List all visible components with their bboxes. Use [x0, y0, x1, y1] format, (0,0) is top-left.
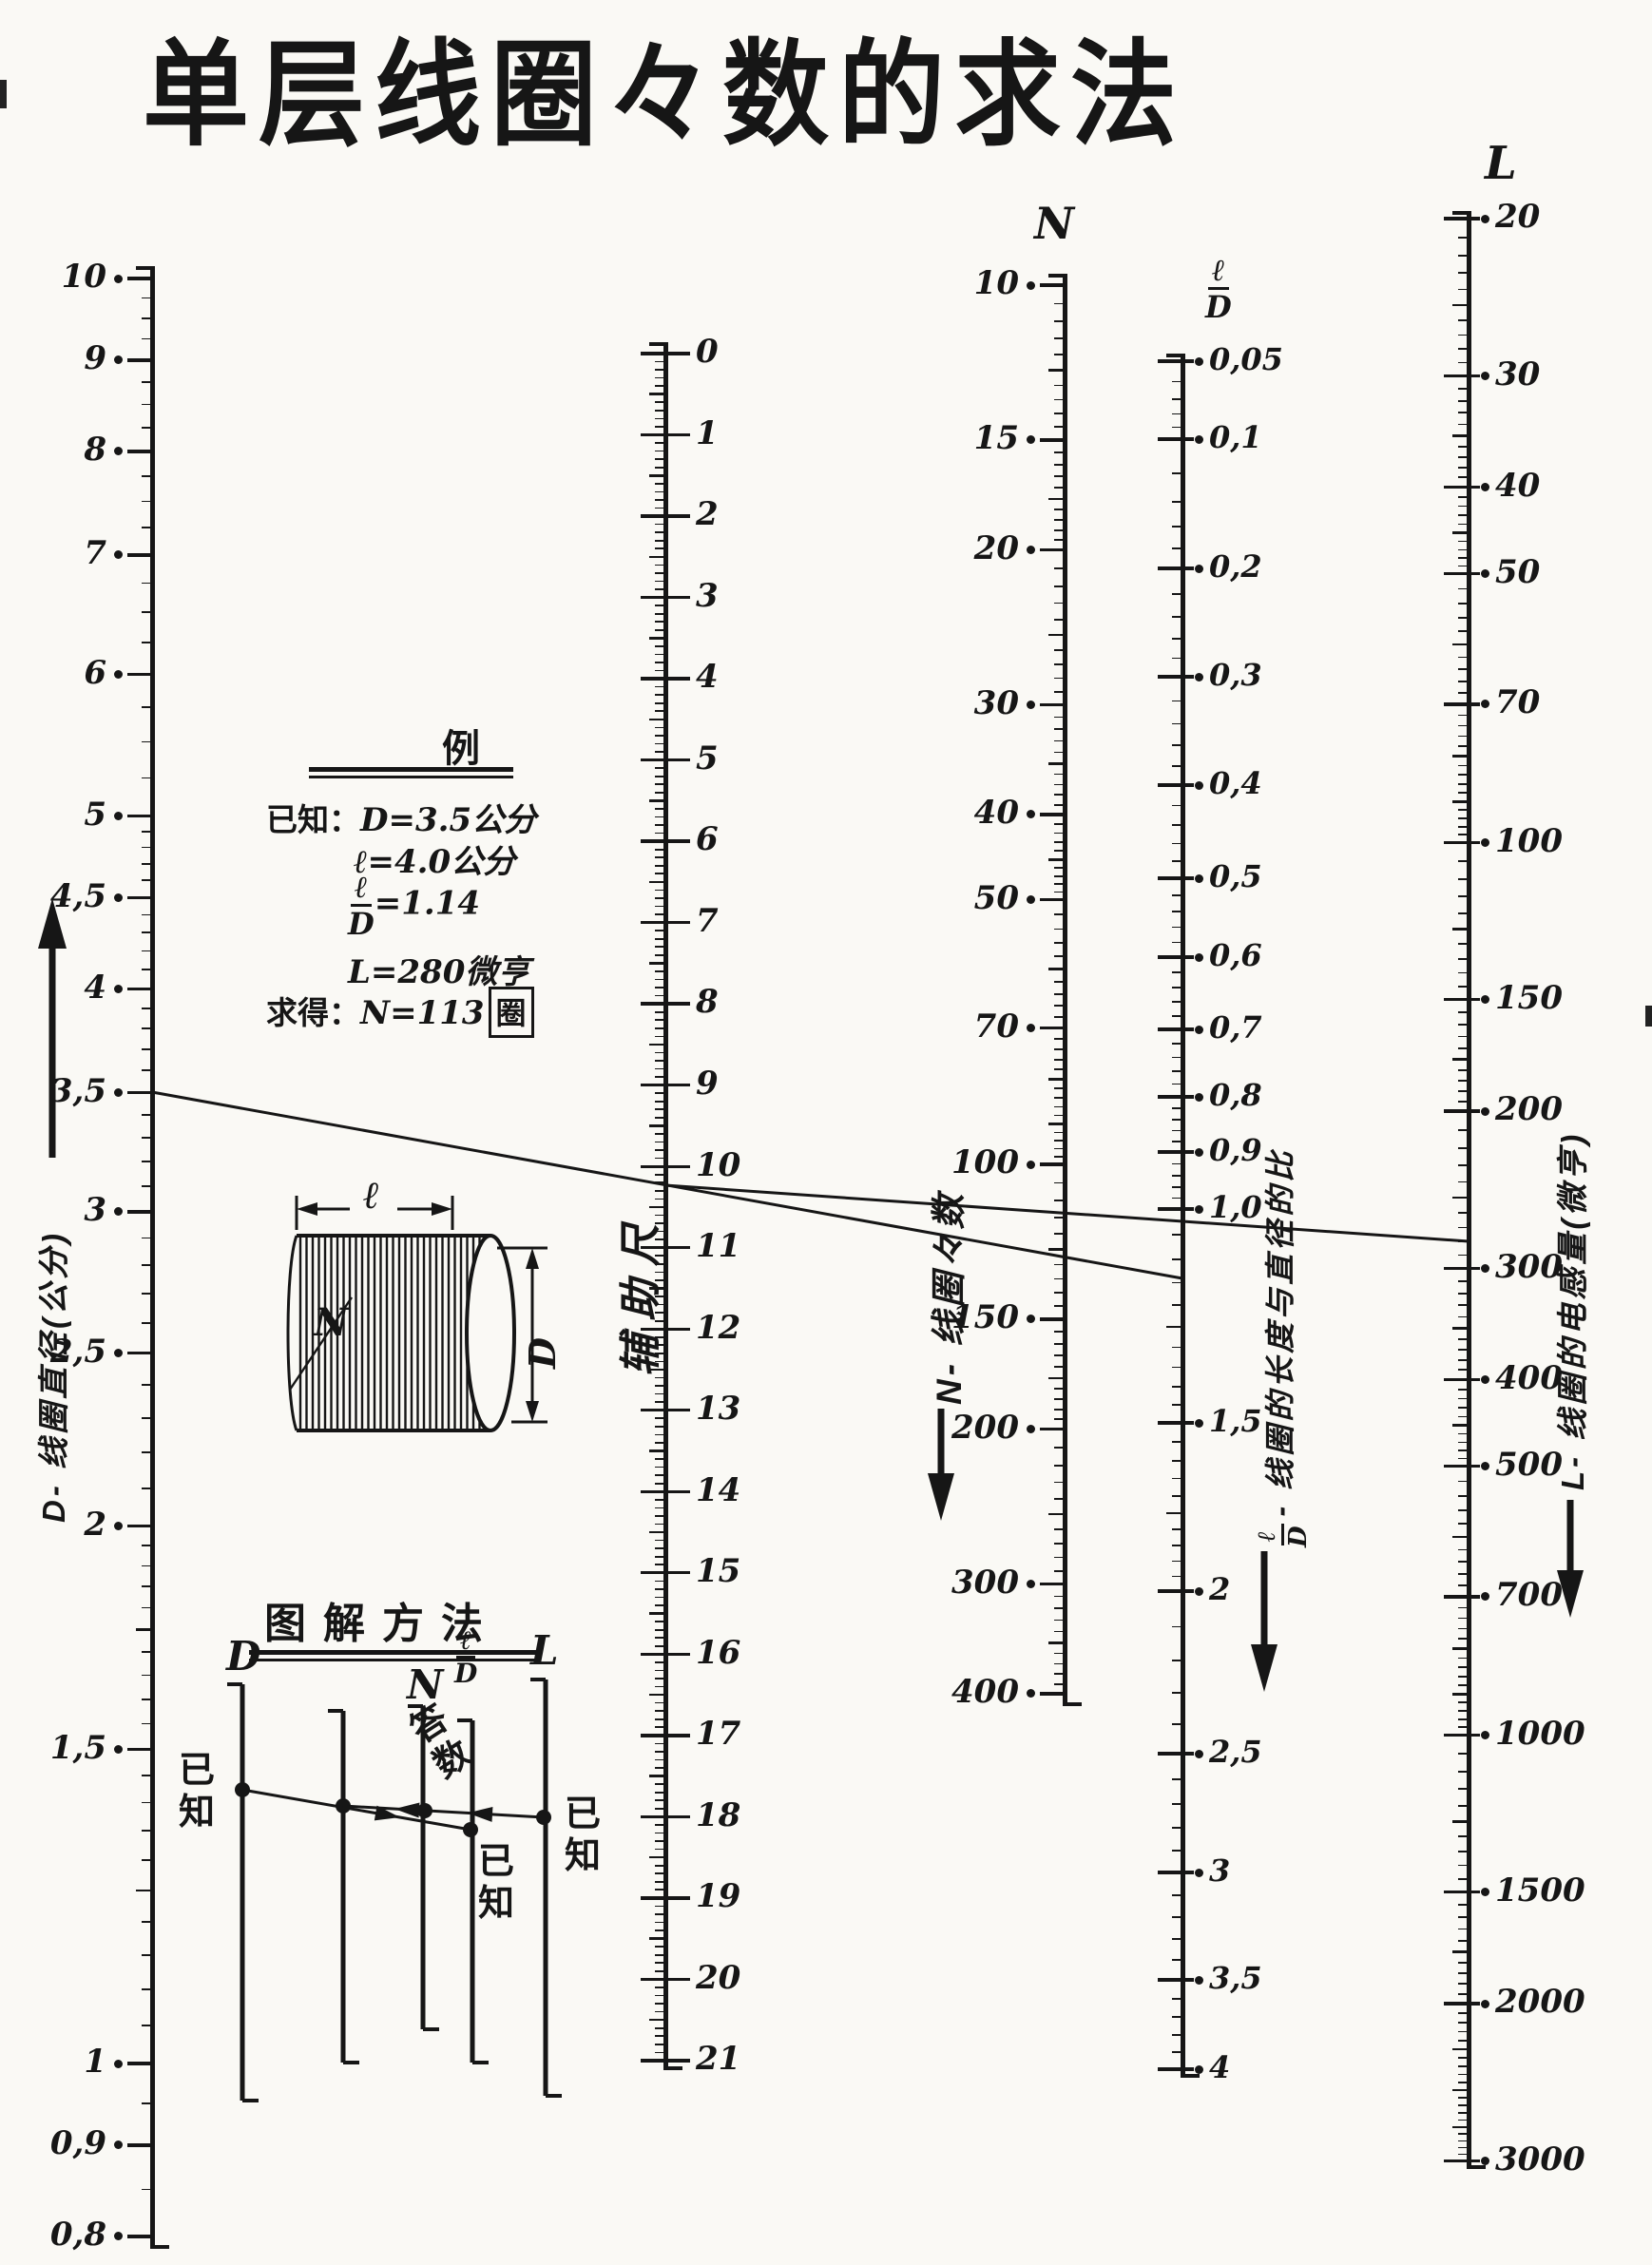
minor-tick-aux [655, 2003, 665, 2005]
minor-tick-aux [655, 1962, 665, 1964]
major-tick-lD [1158, 876, 1182, 879]
tick-leader-lD [1182, 1027, 1194, 1030]
minor-tick-lD [1172, 723, 1182, 725]
minor-tick-aux [655, 1865, 665, 1867]
major-tick-aux [641, 1978, 665, 1981]
minor-tick-D [142, 1384, 152, 1386]
tick-label-aux: 17 [696, 1718, 740, 1750]
tick-label-D: 4,5 [0, 880, 106, 912]
tick-leader-L [1469, 998, 1480, 1001]
minor-tick-D [142, 1802, 152, 1804]
minor-tick-aux [655, 1174, 665, 1176]
scale-cap-aux [649, 342, 665, 346]
minor-tick-L [1458, 476, 1469, 478]
tick-dot-lD [1195, 1205, 1203, 1214]
minor-tick-aux [655, 1808, 665, 1810]
minor-tick-L [1458, 792, 1469, 794]
tick-leader-lD [1182, 1207, 1194, 1210]
minor-tick-aux [655, 1849, 665, 1851]
minor-tick-L [1458, 1181, 1469, 1183]
minor-tick-L [1458, 1316, 1469, 1318]
minor-tick-lD [1172, 942, 1182, 944]
minor-tick-aux [649, 2019, 665, 2022]
major-tick-N [1040, 283, 1065, 286]
minor-tick-N [1054, 1607, 1065, 1609]
scale-cap-L [1452, 211, 1469, 215]
tick-leader-L [1469, 572, 1480, 575]
minor-tick-L [1458, 603, 1469, 605]
minor-tick-D [142, 298, 152, 299]
minor-tick-aux [655, 565, 665, 566]
minor-tick-aux [655, 808, 665, 810]
major-tick-lD [1158, 1871, 1182, 1873]
minor-tick-aux [655, 1710, 665, 1712]
scale-cap-aux [665, 2066, 682, 2070]
minor-tick-aux [649, 1694, 665, 1697]
tick-label-D: 3,5 [0, 1075, 106, 1107]
minor-tick-L [1452, 2048, 1469, 2051]
minor-tick-aux [655, 572, 665, 574]
minor-tick-aux [655, 531, 665, 533]
major-tick-lD [1158, 1978, 1182, 1981]
minor-tick-N [1054, 929, 1065, 931]
minor-tick-lD [1172, 1141, 1182, 1142]
minor-tick-D [142, 1293, 152, 1295]
minor-tick-aux [655, 1215, 665, 1217]
tick-label-lD: 0,5 [1209, 861, 1262, 892]
minor-tick-aux [655, 686, 665, 688]
major-tick-lD [1158, 1095, 1182, 1098]
example-ratio-value: ℓ D =1.14 [348, 872, 480, 939]
minor-tick-aux [655, 1929, 665, 1931]
minor-tick-aux [655, 1792, 665, 1794]
minor-tick-lD [1172, 1163, 1182, 1165]
minor-tick-aux [655, 873, 665, 874]
minor-tick-lD [1172, 824, 1182, 826]
tick-dot-L [1481, 372, 1489, 380]
minor-tick-L [1458, 2104, 1469, 2106]
minor-tick-L [1458, 2057, 1469, 2059]
tick-label-aux: 7 [696, 905, 719, 937]
minor-tick-N [1054, 529, 1065, 531]
minor-tick-aux [655, 369, 665, 371]
minor-tick-lD [1166, 1326, 1182, 1329]
minor-tick-L [1458, 2031, 1469, 2033]
minor-tick-lD [1172, 1576, 1182, 1578]
minor-tick-L [1458, 1227, 1469, 1229]
minor-tick-N [1054, 663, 1065, 665]
minor-tick-L [1452, 1327, 1469, 1330]
tick-label-N: 30 [912, 687, 1019, 720]
tick-leader-lD [1182, 1589, 1194, 1592]
minor-tick-aux [649, 719, 665, 721]
tick-label-D: 9 [0, 342, 106, 374]
minor-tick-lD [1172, 1001, 1182, 1003]
minor-tick-aux [655, 1540, 665, 1542]
minor-tick-L [1458, 1549, 1469, 1551]
minor-tick-aux [655, 629, 665, 631]
minor-tick-N [1054, 337, 1065, 339]
minor-tick-lD [1172, 1528, 1182, 1530]
tick-leader-lD [1182, 1150, 1194, 1153]
minor-tick-aux [655, 1661, 665, 1663]
tick-label-aux: 20 [696, 1962, 740, 1994]
minor-tick-lD [1172, 911, 1182, 912]
minor-tick-L [1458, 400, 1469, 402]
minor-tick-L [1458, 446, 1469, 448]
major-tick-aux [641, 596, 665, 599]
tick-label-aux: 12 [696, 1312, 740, 1344]
minor-tick-L [1458, 1983, 1469, 1985]
minor-tick-aux [655, 1231, 665, 1233]
minor-tick-aux [655, 499, 665, 501]
tick-label-lD: 1,5 [1209, 1406, 1262, 1436]
minor-tick-L [1458, 424, 1469, 426]
minor-tick-D [142, 1069, 152, 1071]
tick-dot-lD [1195, 435, 1203, 444]
major-tick-aux [641, 433, 665, 436]
minor-tick-N [1054, 1570, 1065, 1572]
coil-turns-label: N [314, 1304, 349, 1342]
minor-tick-aux [655, 1434, 665, 1436]
tick-label-L: 400 [1495, 1362, 1563, 1394]
minor-tick-aux [655, 735, 665, 737]
minor-tick-lD [1172, 701, 1182, 702]
minor-tick-aux [655, 1833, 665, 1834]
minor-tick-N [1054, 1631, 1065, 1633]
minor-tick-aux [655, 1954, 665, 1956]
minor-tick-L [1458, 1684, 1469, 1686]
minor-tick-L [1458, 1726, 1469, 1728]
minor-tick-D [142, 1723, 152, 1725]
minor-tick-L [1458, 1962, 1469, 1964]
major-tick-lD [1158, 359, 1182, 362]
example-n-unit: 圈 [489, 987, 534, 1038]
minor-tick-L [1458, 681, 1469, 682]
example-underline [309, 767, 513, 772]
minor-tick-N [1054, 1343, 1065, 1345]
minor-tick-aux [655, 621, 665, 623]
tick-label-aux: 2 [696, 498, 719, 530]
minor-tick-L [1458, 1584, 1469, 1586]
ld-axis-title: ℓ D - 线圈的长度与直径的比 [1255, 1148, 1311, 1547]
minor-tick-N [1048, 968, 1065, 970]
minor-tick-L [1458, 860, 1469, 862]
minor-tick-L [1458, 348, 1469, 350]
minor-tick-aux [655, 897, 665, 899]
minor-tick-D [142, 1451, 152, 1453]
minor-tick-lD [1172, 638, 1182, 640]
minor-tick-D [142, 914, 152, 916]
minor-tick-aux [655, 1474, 665, 1476]
tick-leader-lD [1182, 566, 1194, 569]
minor-tick-N [1054, 1673, 1065, 1675]
minor-tick-L [1458, 1676, 1469, 1678]
tick-label-N: 150 [912, 1301, 1019, 1334]
sketch-line-0 [242, 1790, 471, 1830]
minor-tick-L [1452, 643, 1469, 646]
minor-tick-D [142, 950, 152, 952]
tick-label-lD: 0,4 [1209, 768, 1262, 798]
minor-tick-D [142, 583, 152, 585]
major-tick-D [127, 358, 152, 361]
minor-tick-aux [655, 792, 665, 794]
tick-label-D: 3 [0, 1194, 106, 1226]
major-tick-lD [1158, 1589, 1182, 1592]
minor-tick-N [1054, 678, 1065, 680]
minor-tick-N [1054, 519, 1065, 521]
minor-tick-aux [655, 1524, 665, 1526]
scale-cap-N [1048, 274, 1065, 278]
minor-tick-L [1452, 1536, 1469, 1539]
minor-tick-aux [649, 1206, 665, 1209]
tick-dot-N [1027, 1580, 1035, 1588]
minor-tick-L [1458, 467, 1469, 469]
tick-label-D: 7 [0, 537, 106, 569]
minor-tick-aux [649, 1612, 665, 1615]
minor-tick-L [1458, 2074, 1469, 2076]
minor-tick-D [136, 1628, 152, 1631]
tick-label-lD: 0,8 [1209, 1080, 1262, 1110]
example-box: 例 已知：D=3.5公分 ℓ=4.0公分 ℓ D =1.14 L=280微亨 求… [266, 718, 580, 1031]
minor-tick-aux [649, 1124, 665, 1127]
minor-tick-L [1458, 388, 1469, 390]
tick-dot-lD [1195, 1026, 1203, 1034]
minor-tick-L [1452, 531, 1469, 534]
minor-tick-N [1054, 475, 1065, 477]
minor-tick-D [136, 1890, 152, 1892]
minor-tick-N [1054, 426, 1065, 428]
minor-tick-L [1458, 1240, 1469, 1242]
minor-tick-lD [1172, 805, 1182, 807]
minor-tick-aux [655, 856, 665, 858]
tick-label-lD: 2,5 [1209, 1737, 1262, 1767]
tick-label-aux: 18 [696, 1799, 740, 1832]
minor-tick-L [1458, 2022, 1469, 2024]
minor-tick-aux [655, 1995, 665, 1997]
minor-tick-lD [1172, 1545, 1182, 1546]
minor-tick-L [1458, 630, 1469, 632]
minor-tick-N [1054, 1354, 1065, 1356]
tick-leader-aux [665, 2059, 690, 2062]
minor-tick-L [1458, 1771, 1469, 1773]
minor-tick-L [1458, 557, 1469, 559]
minor-tick-D [142, 1921, 152, 1923]
minor-tick-aux [655, 1556, 665, 1558]
tick-label-L: 3000 [1495, 2143, 1585, 2176]
tick-leader-aux [665, 758, 690, 761]
minor-tick-N [1054, 1156, 1065, 1158]
tick-dot-N [1027, 1161, 1035, 1169]
minor-tick-aux [649, 1937, 665, 1940]
tick-label-aux: 10 [696, 1149, 740, 1181]
minor-tick-lD [1172, 1827, 1182, 1829]
minor-tick-D [142, 1565, 152, 1567]
minor-tick-lD [1172, 398, 1182, 400]
minor-tick-lD [1172, 1367, 1182, 1369]
minor-tick-L [1458, 1523, 1469, 1525]
minor-tick-aux [655, 1401, 665, 1403]
major-tick-L [1444, 2002, 1469, 2005]
minor-tick-lD [1172, 1304, 1182, 1306]
n-scale-header: N [1034, 202, 1074, 245]
minor-tick-L [1458, 1481, 1469, 1483]
tick-leader-lD [1182, 437, 1194, 440]
minor-tick-D [142, 777, 152, 779]
scale-cap-lD [1166, 354, 1182, 357]
minor-tick-D [142, 1238, 152, 1239]
minor-tick-aux [649, 393, 665, 395]
tick-label-aux: 8 [696, 986, 719, 1018]
tick-leader-L [1469, 841, 1480, 844]
minor-tick-aux [655, 1320, 665, 1322]
minor-tick-N [1048, 369, 1065, 372]
tick-leader-lD [1182, 783, 1194, 786]
minor-tick-N [1054, 1068, 1065, 1070]
minor-tick-aux [655, 979, 665, 981]
major-tick-L [1444, 702, 1469, 705]
minor-tick-L [1458, 1011, 1469, 1013]
tick-dot-L [1481, 838, 1489, 847]
minor-tick-lD [1172, 1660, 1182, 1661]
minor-tick-aux [655, 442, 665, 444]
major-tick-L [1444, 1465, 1469, 1468]
minor-tick-aux [649, 1044, 665, 1046]
minor-tick-lD [1172, 1107, 1182, 1109]
chart-artwork [0, 0, 1652, 2265]
minor-tick-lD [1172, 860, 1182, 862]
minor-tick-L [1458, 943, 1469, 945]
minor-tick-N [1054, 539, 1065, 541]
tick-label-N: 200 [912, 1411, 1019, 1444]
minor-tick-aux [655, 1426, 665, 1428]
major-tick-lD [1158, 1207, 1182, 1210]
minor-tick-D [142, 1699, 152, 1700]
minor-tick-L [1458, 2112, 1469, 2114]
minor-tick-lD [1172, 1850, 1182, 1852]
minor-tick-N [1054, 774, 1065, 776]
minor-tick-aux [655, 2011, 665, 2013]
minor-tick-aux [655, 816, 665, 818]
minor-tick-D [142, 847, 152, 849]
tick-label-aux: 1 [696, 417, 719, 450]
minor-tick-L [1452, 1693, 1469, 1696]
minor-tick-L [1452, 1058, 1469, 1061]
minor-tick-L [1458, 1359, 1469, 1361]
minor-tick-L [1458, 1024, 1469, 1026]
major-tick-L [1444, 486, 1469, 489]
minor-tick-lD [1172, 1043, 1182, 1045]
sketch-known-ld: 已知 [478, 1842, 520, 1925]
minor-tick-N [1054, 833, 1065, 835]
minor-tick-N [1054, 1409, 1065, 1411]
minor-tick-N [1054, 413, 1065, 414]
major-tick-L [1444, 1734, 1469, 1737]
major-tick-aux [641, 839, 665, 842]
major-tick-lD [1158, 955, 1182, 958]
tick-label-lD: 3,5 [1209, 1963, 1262, 1993]
tick-leader-aux [665, 514, 690, 517]
minor-tick-L [1458, 1993, 1469, 1995]
minor-tick-L [1458, 319, 1469, 321]
minor-tick-aux [655, 547, 665, 549]
minor-tick-N [1054, 867, 1065, 869]
minor-tick-N [1054, 1620, 1065, 1622]
tick-label-aux: 14 [696, 1474, 740, 1507]
tick-dot-lD [1195, 781, 1203, 790]
minor-tick-lD [1172, 1084, 1182, 1085]
minor-tick-lD [1166, 1512, 1182, 1515]
major-tick-aux [641, 2059, 665, 2062]
major-tick-L [1444, 572, 1469, 575]
minor-tick-D [142, 863, 152, 865]
minor-tick-aux [655, 1467, 665, 1468]
minor-tick-lD [1172, 1386, 1182, 1388]
minor-tick-aux [655, 783, 665, 785]
tick-leader-aux [665, 1490, 690, 1493]
minor-tick-aux [655, 458, 665, 460]
major-tick-N [1040, 703, 1065, 706]
sketch-known-l: 已知 [565, 1795, 606, 1877]
sketch-l-label: L [530, 1627, 559, 1674]
minor-tick-lD [1172, 381, 1182, 383]
minor-tick-D [142, 1008, 152, 1009]
tick-dot-lD [1195, 1419, 1203, 1428]
tick-leader-lD [1182, 675, 1194, 678]
minor-tick-aux [655, 833, 665, 835]
minor-tick-D [142, 2102, 152, 2104]
tick-dot-D [114, 1745, 123, 1754]
minor-tick-aux [655, 1117, 665, 1119]
minor-tick-aux [655, 767, 665, 769]
minor-tick-N [1054, 1148, 1065, 1150]
minor-tick-L [1458, 514, 1469, 516]
minor-tick-aux [655, 1052, 665, 1054]
major-tick-aux [641, 677, 665, 680]
tick-label-D: 2 [0, 1508, 106, 1541]
tick-dot-lD [1195, 357, 1203, 366]
minor-tick-L [1458, 692, 1469, 694]
tick-dot-lD [1195, 874, 1203, 883]
minor-tick-aux [655, 1060, 665, 1062]
major-tick-lD [1158, 437, 1182, 440]
tick-dot-D [114, 2060, 123, 2068]
minor-tick-aux [655, 849, 665, 851]
minor-tick-aux [655, 1547, 665, 1549]
minor-tick-N [1054, 1388, 1065, 1390]
minor-tick-aux [655, 710, 665, 712]
tick-dot-N [1027, 546, 1035, 554]
minor-tick-L [1458, 1389, 1469, 1391]
minor-tick-aux [655, 483, 665, 485]
tick-label-lD: 2 [1209, 1574, 1230, 1604]
tick-leader-L [1469, 1595, 1480, 1598]
minor-tick-aux [655, 401, 665, 403]
minor-tick-aux [655, 426, 665, 428]
minor-tick-L [1458, 1047, 1469, 1049]
minor-tick-L [1458, 1293, 1469, 1295]
minor-tick-D [142, 879, 152, 881]
minor-tick-N [1054, 993, 1065, 995]
tick-leader-L [1469, 1109, 1480, 1112]
minor-tick-D [142, 1988, 152, 1990]
tick-label-D: 0,9 [0, 2127, 106, 2159]
major-tick-D [127, 277, 152, 279]
minor-tick-aux [655, 1872, 665, 1874]
major-tick-lD [1158, 1421, 1182, 1424]
minor-tick-N [1048, 858, 1065, 861]
minor-tick-aux [649, 962, 665, 965]
